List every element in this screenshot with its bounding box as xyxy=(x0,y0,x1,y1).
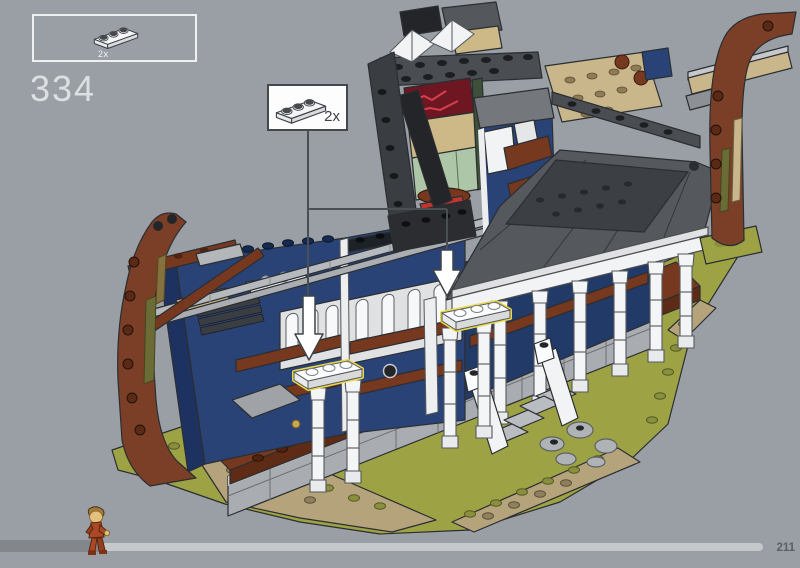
plate-1x3-icon xyxy=(272,92,330,126)
callout-box: 2x xyxy=(267,84,348,131)
progress-track-remaining[interactable] xyxy=(102,543,763,551)
plate-1x3-icon xyxy=(90,21,142,51)
parts-box: 2x xyxy=(32,14,197,62)
callout-quantity: 2x xyxy=(324,108,340,125)
page-number: 211 xyxy=(763,542,795,554)
instruction-page: 2x 334 2x xyxy=(0,0,800,568)
model-illustration xyxy=(0,0,800,568)
step-number: 334 xyxy=(30,68,96,110)
parts-box-quantity: 2x xyxy=(98,49,109,59)
progress-minifig-marker[interactable] xyxy=(78,504,114,558)
